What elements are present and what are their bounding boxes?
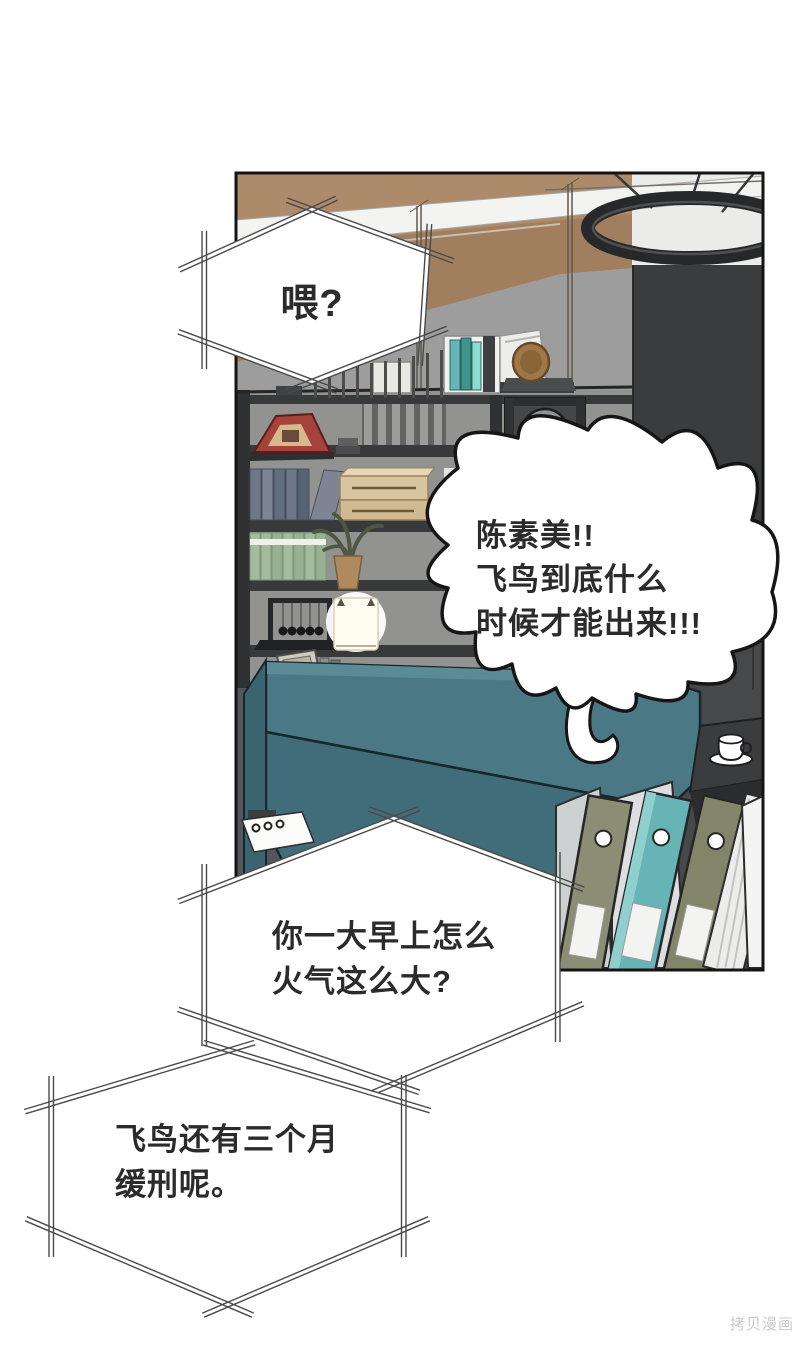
comic-page: { "bubbles": { "b1": { "lines": ["喂?"] }… xyxy=(0,0,800,1345)
dialogue-line: 飞鸟还有三个月 xyxy=(115,1117,339,1162)
small-stack xyxy=(336,438,360,454)
bubble-1-text: 喂? xyxy=(232,272,392,327)
dialogue-line: 喂? xyxy=(232,272,392,327)
slat-divider xyxy=(362,404,446,445)
dialogue-line: 缓刑呢。 xyxy=(115,1162,339,1207)
bookmark-tab xyxy=(768,782,783,809)
green-books xyxy=(250,533,326,580)
dialogue-line: 陈素美!! xyxy=(476,514,702,558)
dialogue-line: 火气这么大? xyxy=(272,959,496,1004)
site-watermark: 拷贝漫画 xyxy=(730,1313,794,1334)
glow-lamp xyxy=(326,592,386,652)
binder-rack xyxy=(556,776,789,981)
plant-pot xyxy=(334,556,362,589)
dialogue-line: 飞鸟到底什么 xyxy=(476,558,702,602)
bubble-2-text: 陈素美!! 飞鸟到底什么 时候才能出来!!! xyxy=(476,514,702,646)
blue-books xyxy=(250,469,346,520)
white-pane xyxy=(373,362,411,393)
bubble-3-text: 你一大早上怎么 火气这么大? xyxy=(272,914,496,1004)
dialogue-line: 你一大早上怎么 xyxy=(272,914,496,959)
tan-boxes xyxy=(340,468,434,520)
dialogue-line: 时候才能出来!!! xyxy=(476,602,702,646)
bubble-4-text: 飞鸟还有三个月 缓刑呢。 xyxy=(115,1117,339,1207)
